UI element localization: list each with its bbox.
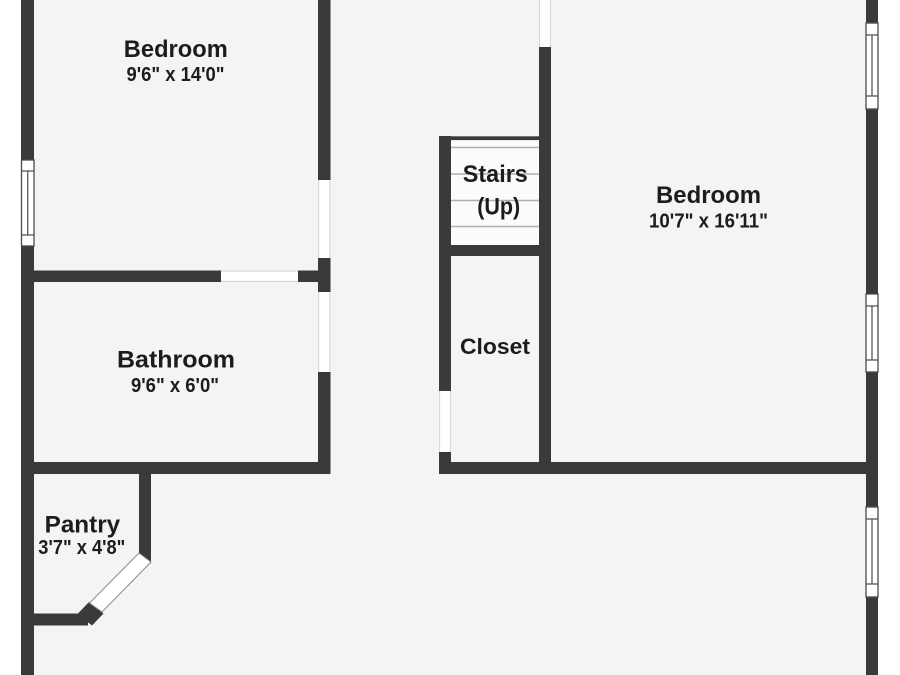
svg-text:Stairs: Stairs bbox=[463, 161, 528, 188]
svg-text:3'7" x 4'8": 3'7" x 4'8" bbox=[38, 537, 125, 559]
svg-text:Bathroom: Bathroom bbox=[117, 347, 235, 374]
svg-text:Bedroom: Bedroom bbox=[656, 182, 761, 209]
svg-text:9'6" x 14'0": 9'6" x 14'0" bbox=[127, 63, 225, 86]
svg-text:(Up): (Up) bbox=[477, 194, 520, 221]
svg-text:Bedroom: Bedroom bbox=[124, 36, 228, 63]
svg-text:Pantry: Pantry bbox=[45, 512, 121, 539]
svg-text:9'6" x 6'0": 9'6" x 6'0" bbox=[131, 374, 219, 397]
svg-text:10'7" x 16'11": 10'7" x 16'11" bbox=[649, 210, 768, 233]
svg-text:Closet: Closet bbox=[460, 334, 531, 359]
